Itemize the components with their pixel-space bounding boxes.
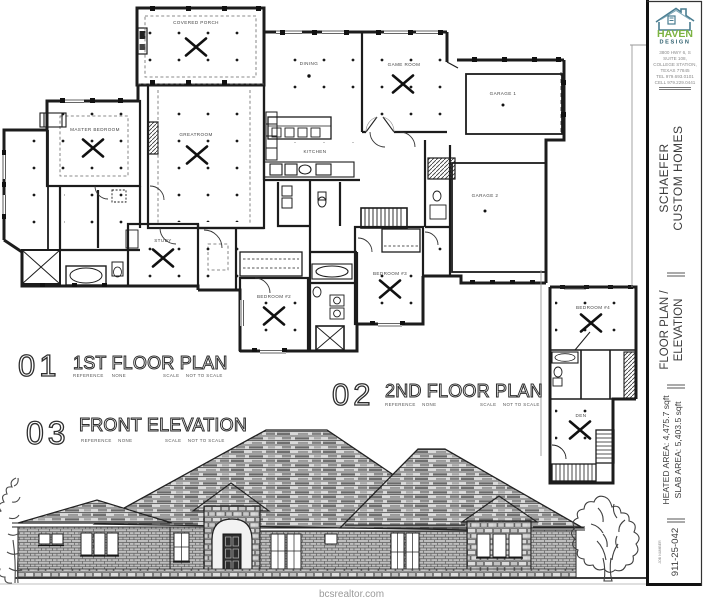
svg-text:GAME ROOM: GAME ROOM xyxy=(388,62,421,67)
svg-text:GARAGE 1: GARAGE 1 xyxy=(490,91,517,96)
svg-text:bcsrealtor.com: bcsrealtor.com xyxy=(319,589,384,599)
svg-text:CUSTOM HOMES: CUSTOM HOMES xyxy=(671,125,685,230)
svg-text:02: 02 xyxy=(332,377,374,412)
svg-text:SCALE NOT TO SCALE: SCALE NOT TO SCALE xyxy=(163,373,223,378)
svg-text:DINING: DINING xyxy=(300,61,319,66)
svg-text:BEDROOM #4: BEDROOM #4 xyxy=(576,305,610,310)
svg-text:TEL 979.693.0101: TEL 979.693.0101 xyxy=(656,74,694,79)
svg-text:KITCHEN: KITCHEN xyxy=(304,149,327,154)
svg-text:2ND FLOOR PLAN: 2ND FLOOR PLAN xyxy=(385,381,543,401)
svg-text:BEDROOM #3: BEDROOM #3 xyxy=(373,271,407,276)
svg-text:REFERENCE NONE: REFERENCE NONE xyxy=(73,373,126,378)
svg-text:03: 03 xyxy=(26,415,70,451)
svg-text:BEDROOM #2: BEDROOM #2 xyxy=(257,294,291,299)
svg-text:GREATROOM: GREATROOM xyxy=(179,132,212,137)
svg-text:SUITE 108,: SUITE 108, xyxy=(663,56,687,61)
svg-text:FLOOR PLAN /: FLOOR PLAN / xyxy=(659,290,671,370)
svg-text:JOB NUMBER: JOB NUMBER xyxy=(658,540,662,564)
svg-text:GARAGE 2: GARAGE 2 xyxy=(472,193,499,198)
svg-text:1ST FLOOR PLAN: 1ST FLOOR PLAN xyxy=(73,353,228,373)
svg-text:01: 01 xyxy=(18,348,60,383)
svg-text:SCALE NOT TO SCALE: SCALE NOT TO SCALE xyxy=(480,402,540,407)
svg-text:CELL 979.229.0441: CELL 979.229.0441 xyxy=(655,80,696,85)
svg-text:DESIGN: DESIGN xyxy=(659,40,690,46)
svg-text:MASTER BEDROOM: MASTER BEDROOM xyxy=(70,127,120,132)
svg-text:SCALE NOT TO SCALE: SCALE NOT TO SCALE xyxy=(165,438,225,443)
svg-text:911-25-042: 911-25-042 xyxy=(670,528,681,576)
svg-text:DEN: DEN xyxy=(576,413,587,418)
svg-text:HAVEN: HAVEN xyxy=(657,28,693,40)
svg-text:FRONT ELEVATION: FRONT ELEVATION xyxy=(79,415,247,435)
svg-text:HEATED AREA: 4,475.7 sqft: HEATED AREA: 4,475.7 sqft xyxy=(661,395,671,505)
svg-text:COVERED PORCH: COVERED PORCH xyxy=(173,20,219,25)
svg-text:COLLEGE STATION,: COLLEGE STATION, xyxy=(653,62,696,67)
svg-text:TEXAS 77845: TEXAS 77845 xyxy=(660,68,690,73)
svg-text:REFERENCE NONE: REFERENCE NONE xyxy=(81,438,132,443)
svg-text:ELEVATION: ELEVATION xyxy=(673,299,685,362)
svg-text:SCHAEFER: SCHAEFER xyxy=(657,143,671,212)
svg-text:SLAB AREA: 5,403.5 sqft: SLAB AREA: 5,403.5 sqft xyxy=(673,401,683,499)
svg-text:3800 HWY 6, S: 3800 HWY 6, S xyxy=(659,50,691,55)
svg-text:REFERENCE NONE: REFERENCE NONE xyxy=(385,402,436,407)
